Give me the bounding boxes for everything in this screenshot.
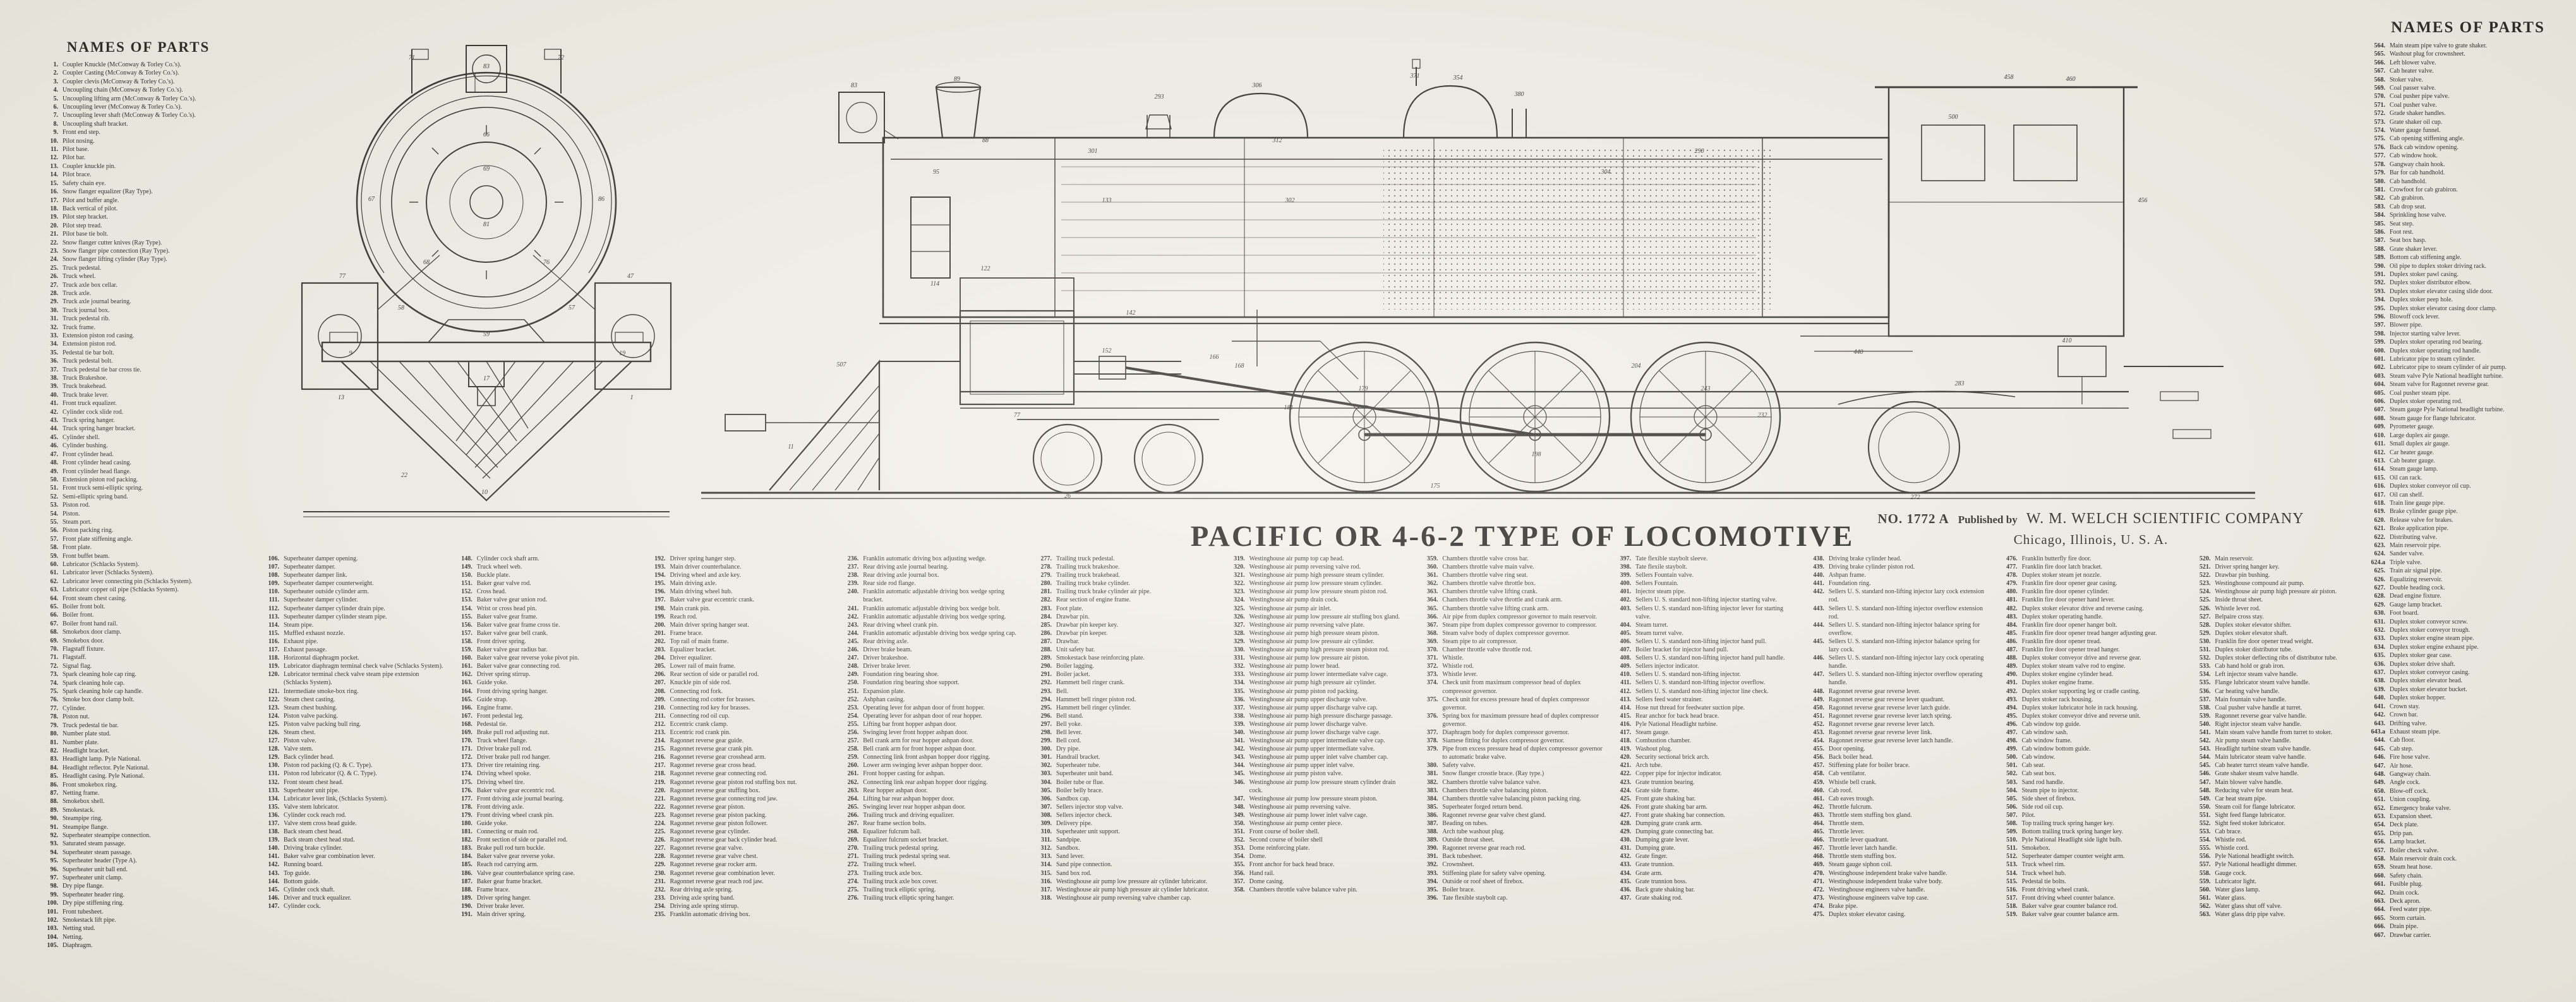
parts-item: 45.Cylinder shell. <box>37 433 240 442</box>
part-callout: 152 <box>1102 347 1112 354</box>
parts-item: 10.Pilot nosing. <box>37 137 240 145</box>
parts-item: 613.Cab heater gauge. <box>2364 457 2572 465</box>
parts-item: 162.Driver spring stirrup. <box>451 670 637 679</box>
parts-item: 534.Left injector steam valve handle. <box>2189 670 2375 679</box>
parts-item: 533.Cab hand hold or grab iron. <box>2189 662 2375 670</box>
parts-item: 521.Driver spring hanger key. <box>2189 563 2375 571</box>
parts-item: 390.Ragonnet reverse gear reach rod. <box>1416 844 1603 852</box>
parts-item: 373.Whistle lever. <box>1416 670 1603 679</box>
parts-item: 384.Chambers throttle valve balancing pi… <box>1416 795 1603 803</box>
parts-item: 517.Front driving wheel counter balance. <box>1996 894 2182 902</box>
parts-item: 582.Cab grabiron. <box>2364 194 2572 202</box>
parts-item: 40.Truck brake lever. <box>37 391 240 399</box>
parts-item: 458.Cab ventilator. <box>1803 770 1989 778</box>
parts-item: 28.Truck axle. <box>37 289 240 298</box>
parts-item: 212.Eccentric crank clamp. <box>644 720 830 728</box>
parts-item: 77.Cylinder. <box>37 704 240 713</box>
parts-item: 588.Grate shaker lever. <box>2364 245 2572 253</box>
parts-item: 427.Front grate shaking bar connection. <box>1610 811 1796 819</box>
parts-item: 486.Franklin fire door opener tread. <box>1996 637 2182 646</box>
parts-item: 660.Safety chain. <box>2364 872 2572 880</box>
parts-item: 1.Coupler Knuckle (McConway & Torley Co.… <box>37 61 240 69</box>
parts-item: 618.Train line gauge pipe. <box>2364 499 2572 507</box>
parts-item: 213.Eccentric rod crank pin. <box>644 728 830 737</box>
part-callout: 83 <box>483 63 490 70</box>
parts-item: 420.Security sectional brick arch. <box>1610 753 1796 761</box>
parts-item: 16.Snow flanger equalizer (Ray Type). <box>37 188 240 196</box>
parts-item: 611.Small duplex air gauge. <box>2364 440 2572 448</box>
parts-item: 62.Lubricator lever connecting pin (Schl… <box>37 577 240 586</box>
parts-item: 662.Drain cock. <box>2364 889 2572 897</box>
parts-item: 580.Cab handhold. <box>2364 178 2572 186</box>
parts-item: 485.Franklin fire door opener tread hang… <box>1996 629 2182 637</box>
parts-item: 152.Cross head. <box>451 588 637 596</box>
parts-item: 468.Throttle stem stuffing box. <box>1803 852 1989 860</box>
parts-item: 156.Baker valve gear frame cross tie. <box>451 621 637 629</box>
parts-item: 237.Rear driving axle journal bearing. <box>837 563 1023 571</box>
parts-item: 649.Angle cock. <box>2364 778 2572 787</box>
parts-item: 146.Driver and truck equalizer. <box>258 894 444 902</box>
parts-item: 263.Rear hopper ashpan door. <box>837 787 1023 795</box>
parts-item: 590.Oil pipe to duplex stoker driving ra… <box>2364 262 2572 270</box>
parts-item: 303.Superheater unit band. <box>1030 770 1217 778</box>
parts-item: 364.Chambers throttle valve throttle and… <box>1416 596 1603 604</box>
parts-item: 214.Ragonnet reverse gear guide. <box>644 737 830 745</box>
parts-item: 529.Duplex stoker elevator shaft. <box>2189 629 2375 637</box>
parts-item: 535.Flange lubricator steam valve handle… <box>2189 679 2375 687</box>
parts-item: 412.Sellers U. S. standard non-lifting i… <box>1610 687 1796 696</box>
parts-item: 119.Lubricator diaphragm terminal check … <box>258 662 444 670</box>
parts-item: 339.Westinghouse air pump lower discharg… <box>1224 720 1410 728</box>
parts-item: 251.Expansion plate. <box>837 687 1023 696</box>
parts-column-11: 520.Main reservoir.521.Driver spring han… <box>2189 555 2375 919</box>
parts-item: 378.Siamese fitting for duplex compresso… <box>1416 737 1603 745</box>
part-callout: 175 <box>1431 483 1440 490</box>
parts-item: 566.Left blower valve. <box>2364 59 2572 67</box>
parts-item: 610.Large duplex air gauge. <box>2364 432 2572 440</box>
parts-item: 595.Duplex stoker elevator casing door c… <box>2364 305 2572 313</box>
parts-item: 305.Boiler belly brace. <box>1030 787 1217 795</box>
parts-item: 495.Duplex stoker conveyor drive and rev… <box>1996 712 2182 720</box>
parts-item: 232.Rear driving axle spring. <box>644 886 830 894</box>
parts-item: 186.Valve gear counterbalance spring cas… <box>451 869 637 878</box>
parts-item: 642.Crown bar. <box>2364 711 2572 719</box>
parts-item: 477.Franklin fire door latch bracket. <box>1996 563 2182 571</box>
parts-item: 165.Guide strap. <box>451 696 637 704</box>
parts-item: 211.Connecting rod oil cup. <box>644 712 830 720</box>
parts-item: 15.Safety chain eye. <box>37 179 240 188</box>
parts-item: 643.Drifting valve. <box>2364 720 2572 728</box>
parts-item: 259.Connecting link front ashpan hopper … <box>837 753 1023 761</box>
parts-item: 438.Driving brake cylinder head. <box>1803 555 1989 563</box>
parts-item: 406.Sellers U. S. standard non-lifting i… <box>1610 637 1796 646</box>
parts-item: 436.Back grate shaking bar. <box>1610 886 1796 894</box>
parts-item: 470.Westinghouse independent brake valve… <box>1803 869 1989 878</box>
parts-item: 424.Grate side frame. <box>1610 787 1796 795</box>
parts-item: 572.Grade shaker handles. <box>2364 109 2572 118</box>
parts-item: 315.Sand box rod. <box>1030 869 1217 878</box>
parts-item: 163.Guide yoke. <box>451 679 637 687</box>
parts-item: 358.Chambers throttle valve balance valv… <box>1224 886 1410 894</box>
parts-item: 350.Westinghouse air pump center piece. <box>1224 819 1410 828</box>
part-callout: 133 <box>1102 197 1112 204</box>
parts-item: 272.Trailing truck wheel. <box>837 860 1023 869</box>
parts-item: 409.Sellers injector indicator. <box>1610 662 1796 670</box>
parts-item: 254.Operating lever for ashpan door of r… <box>837 712 1023 720</box>
parts-item: 421.Arch tube. <box>1610 761 1796 770</box>
parts-item: 167.Front pedestal leg. <box>451 712 637 720</box>
parts-item: 456.Back boiler head. <box>1803 753 1989 761</box>
parts-item: 347.Westinghouse air pump low pressure s… <box>1224 795 1410 803</box>
parts-item: 92.Superheater steampipe connection. <box>37 831 240 840</box>
parts-item: 139.Back steam chest head stud. <box>258 836 444 844</box>
parts-item: 14.Pilot brace. <box>37 171 240 179</box>
left-parts-panel: NAMES OF PARTS 1.Coupler Knuckle (McConw… <box>37 39 240 950</box>
parts-item: 218.Ragonnet reverse gear connecting rod… <box>644 770 830 778</box>
left-parts-list: 1.Coupler Knuckle (McConway & Torley Co.… <box>37 61 240 950</box>
parts-item: 102.Smokestack lift pipe. <box>37 916 240 924</box>
parts-item: 330.Westinghouse air pump high pressure … <box>1224 646 1410 654</box>
parts-item: 346.Westinghouse air pump low pressure s… <box>1224 778 1410 795</box>
parts-item: 643.aExhaust steam pipe. <box>2364 728 2572 736</box>
parts-item: 74.Spark cleaning hole cap. <box>37 679 240 687</box>
parts-item: 307.Sellers injector stop valve. <box>1030 803 1217 811</box>
parts-item: 94.Superheater steam passage. <box>37 848 240 857</box>
parts-item: 100.Dry pipe stiffening ring. <box>37 899 240 907</box>
parts-column-6: 319.Westinghouse air pump top cap head.3… <box>1224 555 1410 919</box>
parts-item: 178.Front driving axle. <box>451 803 637 811</box>
parts-item: 60.Lubricator (Schlacks System). <box>37 560 240 569</box>
parts-item: 89.Smokestack. <box>37 806 240 814</box>
parts-item: 337.Westinghouse air pump upper discharg… <box>1224 704 1410 712</box>
parts-item: 238.Rear driving axle journal box. <box>837 571 1023 579</box>
parts-item: 636.Duplex stoker drive shaft. <box>2364 660 2572 668</box>
parts-item: 497.Cab window sash. <box>1996 728 2182 737</box>
parts-item: 602.Lubricator pipe to steam cylinder of… <box>2364 363 2572 371</box>
parts-item: 138.Back steam chest head. <box>258 828 444 836</box>
parts-item: 587.Seat box hasp. <box>2364 236 2572 244</box>
part-callout: 83 <box>851 82 857 89</box>
parts-item: 299.Bell cord. <box>1030 737 1217 745</box>
parts-item: 564.Main steam pipe valve to grate shake… <box>2364 42 2572 50</box>
parts-item: 604.Steam valve for Ragonnet reverse gea… <box>2364 380 2572 389</box>
parts-item: 33.Extension piston rod casing. <box>37 332 240 340</box>
parts-item: 528.Duplex stoker elevator shifter. <box>2189 621 2375 629</box>
parts-item: 440.Ashpan frame. <box>1803 571 1989 579</box>
parts-item: 127.Piston valve. <box>258 737 444 745</box>
parts-item: 274.Trailing truck axle box cover. <box>837 878 1023 886</box>
part-callout: 58 <box>398 305 404 311</box>
parts-item: 531.Duplex stoker distributor tube. <box>2189 646 2375 654</box>
parts-item: 123.Steam chest bushing. <box>258 704 444 712</box>
parts-item: 247.Driver brakeshoe. <box>837 654 1023 662</box>
parts-item: 624.Sander valve. <box>2364 550 2572 558</box>
parts-item: 240.Franklin automatic adjustable drivin… <box>837 588 1023 604</box>
parts-item: 632.Duplex stoker conveyor trough. <box>2364 626 2572 634</box>
part-callout: 283 <box>1955 380 1965 387</box>
parts-item: 128.Valve stem. <box>258 745 444 753</box>
part-callout: 71 <box>409 54 415 61</box>
parts-item: 556.Pyle National headlight switch. <box>2189 852 2375 860</box>
parts-item: 466.Throttle lever quadrant. <box>1803 836 1989 844</box>
parts-item: 518.Baker valve gear counter balance rod… <box>1996 902 2182 910</box>
parts-item: 73.Spark cleaning hole cap ring. <box>37 670 240 679</box>
parts-item: 651.Union coupling. <box>2364 795 2572 804</box>
part-callout: 66 <box>483 131 490 138</box>
parts-item: 206.Rear section of side or parallel rod… <box>644 670 830 679</box>
part-callout: 10 <box>481 489 488 496</box>
parts-item: 104.Netting. <box>37 933 240 941</box>
parts-item: 327.Westinghouse air pump reversing valv… <box>1224 621 1410 629</box>
parts-item: 478.Duplex stoker steam jet nozzle. <box>1996 571 2182 579</box>
parts-column-5: 277.Trailing truck pedestal.278.Trailing… <box>1030 555 1217 919</box>
parts-item: 36.Truck pedestal bolt. <box>37 357 240 365</box>
parts-item: 224.Ragonnet reverse gear piston followe… <box>644 819 830 828</box>
parts-item: 450.Ragonnet reverse gear reverse lever … <box>1803 704 1989 712</box>
published-by-label: Published by <box>1952 514 2024 526</box>
parts-item: 413.Sellers feed water strainer. <box>1610 696 1796 704</box>
parts-item: 532.Duplex stoker deflecting ribs of dis… <box>2189 654 2375 662</box>
parts-item: 343.Westinghouse air pump upper inlet va… <box>1224 753 1410 761</box>
parts-item: 542.Air pump steam valve handle. <box>2189 737 2375 745</box>
parts-item: 235.Franklin automatic driving box. <box>644 910 830 919</box>
parts-item: 189.Driver spring hanger. <box>451 894 637 902</box>
parts-item: 106.Superheater damper opening. <box>258 555 444 563</box>
parts-item: 499.Cab window bottom guide. <box>1996 745 2182 753</box>
parts-item: 599.Duplex stoker operating rod bearing. <box>2364 338 2572 346</box>
part-callout: 57 <box>569 305 575 311</box>
parts-item: 638.Duplex stoker elevator head. <box>2364 677 2572 685</box>
parts-item: 309.Delivery pipe. <box>1030 819 1217 828</box>
right-panel-title: NAMES OF PARTS <box>2364 19 2572 37</box>
parts-item: 360.Chambers throttle valve main valve. <box>1416 563 1603 571</box>
parts-item: 434.Grate arm. <box>1610 869 1796 878</box>
parts-item: 448.Ragonnet reverse gear reverse lever. <box>1803 687 1989 696</box>
parts-item: 265.Swinging lever rear hopper ashpan do… <box>837 803 1023 811</box>
parts-item: 113.Superheater damper cylinder steam pi… <box>258 613 444 621</box>
parts-item: 372.Whistle rod. <box>1416 662 1603 670</box>
parts-item: 575.Cab opening stiffening angle. <box>2364 135 2572 143</box>
parts-item: 164.Front driving spring hanger. <box>451 687 637 696</box>
parts-item: 640.Duplex stoker hopper. <box>2364 694 2572 702</box>
parts-item: 227.Ragonnet reverse gear valve. <box>644 844 830 852</box>
parts-item: 144.Bottom guide. <box>258 878 444 886</box>
parts-item: 21.Pilot base tie bolt. <box>37 230 240 238</box>
parts-item: 249.Foundation ring bearing shoe. <box>837 670 1023 679</box>
parts-item: 554.Whistle rod. <box>2189 836 2375 844</box>
parts-item: 377.Diaphragm body for duplex compressor… <box>1416 728 1603 737</box>
parts-item: 194.Driving wheel and axle key. <box>644 571 830 579</box>
parts-item: 507.Pilot. <box>1996 811 2182 819</box>
parts-item: 652.Emergency brake valve. <box>2364 804 2572 812</box>
parts-item: 394.Outside or roof sheet of firebox. <box>1416 878 1603 886</box>
parts-item: 61.Lubricator lever (Schlacks System). <box>37 569 240 577</box>
parts-item: 472.Westinghouse engineers valve handle. <box>1803 886 1989 894</box>
parts-item: 76.Smoke box door clamp bolt. <box>37 696 240 704</box>
parts-item: 400.Sellers Fountain. <box>1610 579 1796 588</box>
parts-item: 524.Westinghouse air pump high pressure … <box>2189 588 2375 596</box>
parts-item: 236.Franklin automatic driving box adjus… <box>837 555 1023 563</box>
parts-item: 98.Dry pipe flange. <box>37 882 240 890</box>
parts-item: 592.Duplex stoker distributor elbow. <box>2364 279 2572 287</box>
parts-item: 577.Cab window hook. <box>2364 152 2572 160</box>
parts-item: 511.Smokebox. <box>1996 844 2182 852</box>
parts-item: 243.Rear driving wheel crank pin. <box>837 621 1023 629</box>
parts-item: 527.Belpaire cross stay. <box>2189 613 2375 621</box>
parts-item: 37.Truck pedestal tie bar cross tie. <box>37 366 240 374</box>
parts-item: 204.Driver equalizer. <box>644 654 830 662</box>
part-callout: 26 <box>1064 493 1071 500</box>
parts-item: 352.Second course of boiler shell <box>1224 836 1410 844</box>
parts-item: 57.Front plate stiffening angle. <box>37 535 240 543</box>
parts-item: 192.Driver spring hanger step. <box>644 555 830 563</box>
part-callout: 13 <box>338 394 344 401</box>
parts-item: 616.Duplex stoker conveyor oil cup. <box>2364 482 2572 490</box>
parts-item: 110.Superheater outside cylinder arm. <box>258 588 444 596</box>
parts-item: 356.Hand rail. <box>1224 869 1410 878</box>
parts-item: 126.Steam chest. <box>258 728 444 737</box>
parts-item: 95.Superheater header (Type A). <box>37 857 240 865</box>
parts-item: 492.Duplex stoker supporting leg or crad… <box>1996 687 2182 696</box>
parts-item: 515.Pedestal tie bolts. <box>1996 878 2182 886</box>
parts-item: 131.Piston rod lubricator (Q. & C. Type)… <box>258 770 444 778</box>
part-callout: 9 <box>349 350 352 357</box>
parts-item: 647.Air hose. <box>2364 762 2572 770</box>
side-view-drawing: 8983882933063123713543802903011421227715… <box>689 13 2268 518</box>
parts-item: 546.Grate shaker steam valve handle. <box>2189 770 2375 778</box>
parts-item: 363.Chambers throttle valve lifting cran… <box>1416 588 1603 596</box>
parts-item: 294.Hammett bell ringer piston rod. <box>1030 696 1217 704</box>
parts-item: 398.Tate flexile staybolt. <box>1610 563 1796 571</box>
parts-item: 193.Main driver counterbalance. <box>644 563 830 571</box>
parts-item: 181.Connecting or main rod. <box>451 828 637 836</box>
parts-item: 657.Boiler check valve. <box>2364 847 2572 855</box>
parts-item: 84.Headlight reflector. Pyle National. <box>37 764 240 772</box>
parts-item: 96.Superheater unit ball end. <box>37 866 240 874</box>
parts-item: 553.Cab brace. <box>2189 828 2375 836</box>
parts-item: 429.Dumping grate connecting bar. <box>1610 828 1796 836</box>
parts-item: 42.Cylinder cock slide rod. <box>37 408 240 416</box>
part-callout: 204 <box>1632 363 1641 370</box>
parts-item: 393.Stiffening plate for safety valve op… <box>1416 869 1603 878</box>
front-view-drawing: 1022919597747837172666981687667861311758… <box>297 13 676 524</box>
parts-item: 417.Steam gauge. <box>1610 728 1796 737</box>
parts-item: 461.Cab eaves trough. <box>1803 795 1989 803</box>
parts-item: 469.Steam gauge siphon coil. <box>1803 860 1989 869</box>
parts-item: 338.Westinghouse air pump high pressure … <box>1224 712 1410 720</box>
parts-item: 405.Steam turret valve. <box>1610 629 1796 637</box>
parts-item: 333.Westinghouse air pump lower intermed… <box>1224 670 1410 679</box>
parts-item: 268.Equalizer fulcrum ball. <box>837 828 1023 836</box>
parts-item: 540.Right injector steam valve handle. <box>2189 720 2375 728</box>
parts-item: 568.Stoker valve. <box>2364 76 2572 84</box>
parts-item: 557.Pyle National headlight dimmer. <box>2189 860 2375 869</box>
parts-item: 593.Duplex stoker elevator casing slide … <box>2364 287 2572 296</box>
parts-item: 639.Duplex stoker elevator bucket. <box>2364 685 2572 694</box>
part-callout: 72 <box>558 54 564 61</box>
parts-item: 49.Front cylinder head flange. <box>37 468 240 476</box>
parts-item: 34.Extension piston rod. <box>37 340 240 348</box>
parts-item: 382.Chambers throttle valve balance valv… <box>1416 778 1603 787</box>
parts-item: 574.Water gauge funnel. <box>2364 126 2572 135</box>
parts-item: 627.Double heading cock. <box>2364 584 2572 592</box>
parts-item: 133.Superheater unit pipe. <box>258 787 444 795</box>
parts-item: 612.Car heater gauge. <box>2364 449 2572 457</box>
parts-item: 481.Franklin fire door opener hand lever… <box>1996 596 2182 604</box>
parts-item: 78.Piston nut. <box>37 713 240 721</box>
parts-item: 443.Sellers U. S. standard non-lifting i… <box>1803 605 1989 621</box>
part-callout: 293 <box>1155 94 1164 100</box>
parts-item: 293.Bell. <box>1030 687 1217 696</box>
parts-item: 281.Trailing truck brake cylinder air pi… <box>1030 588 1217 596</box>
parts-item: 90.Steampipe ring. <box>37 814 240 823</box>
parts-item: 317.Westinghouse air pump high pressure … <box>1030 886 1217 894</box>
parts-item: 199.Reach rod. <box>644 613 830 621</box>
parts-item: 191.Main driver spring. <box>451 910 637 919</box>
parts-item: 506.Side rod oil cup. <box>1996 803 2182 811</box>
parts-item: 628.Dead engine fixture. <box>2364 592 2572 600</box>
parts-item: 386.Ragonnet reverse gear valve chest gl… <box>1416 811 1603 819</box>
parts-item: 630.Foot board. <box>2364 609 2572 617</box>
parts-item: 54.Piston. <box>37 510 240 518</box>
parts-item: 541.Main steam valve handle from turret … <box>2189 728 2375 737</box>
parts-item: 665.Storm curtain. <box>2364 914 2572 922</box>
parts-item: 120.Lubricator terminal check valve stea… <box>258 670 444 687</box>
parts-item: 467.Throttle lever latch handle. <box>1803 844 1989 852</box>
parts-item: 341.Westinghouse air pump upper intermed… <box>1224 737 1410 745</box>
parts-item: 264.Lifting bar rear ashpan hopper door. <box>837 795 1023 803</box>
part-callout: 500 <box>1949 114 1958 121</box>
parts-item: 221.Ragonnet reverse gear connecting rod… <box>644 795 830 803</box>
parts-item: 287.Drawbar. <box>1030 637 1217 646</box>
locomotive-parts-chart: NAMES OF PARTS 1.Coupler Knuckle (McConw… <box>0 0 2576 1002</box>
parts-item: 217.Ragonnet reverse gear cross head. <box>644 761 830 770</box>
parts-item: 312.Sandbox. <box>1030 844 1217 852</box>
parts-item: 105.Diaphragm. <box>37 941 240 950</box>
parts-item: 29.Truck axle journal bearing. <box>37 298 240 306</box>
parts-item: 658.Main reservoir drain cock. <box>2364 855 2572 863</box>
parts-item: 313.Sand lever. <box>1030 852 1217 860</box>
parts-item: 581.Crowfoot for cab grabiron. <box>2364 186 2572 194</box>
parts-item: 278.Trailing truck brakeshoe. <box>1030 563 1217 571</box>
parts-item: 289.Smokestack base reinforcing plate. <box>1030 654 1217 662</box>
parts-item: 366.Air pipe from duplex compressor gove… <box>1416 613 1603 621</box>
parts-item: 250.Foundation ring bearing shoe support… <box>837 679 1023 687</box>
bottom-parts-columns: 106.Superheater damper opening.107.Super… <box>258 555 2375 919</box>
parts-item: 397.Tate flexible staybolt sleeve. <box>1610 555 1796 563</box>
parts-item: 455.Door opening. <box>1803 745 1989 753</box>
parts-item: 392.Crownsheet. <box>1416 860 1603 869</box>
parts-item: 177.Front driving axle journal bearing. <box>451 795 637 803</box>
parts-item: 447.Sellers U. S. standard non-lifting i… <box>1803 670 1989 687</box>
parts-item: 141.Baker valve gear combination lever. <box>258 852 444 860</box>
parts-item: 114.Steam pipe. <box>258 621 444 629</box>
part-callout: 89 <box>954 76 960 83</box>
parts-item: 229.Ragonnet reverse gear rocker arm. <box>644 860 830 869</box>
part-callout: 290 <box>1695 148 1704 155</box>
parts-item: 130.Piston rod packing (Q. & C. Type). <box>258 761 444 770</box>
parts-item: 500.Cab window. <box>1996 753 2182 761</box>
part-callout: 122 <box>981 265 990 272</box>
parts-item: 359.Chambers throttle valve cross bar. <box>1416 555 1603 563</box>
parts-item: 430.Dumping grate lever. <box>1610 836 1796 844</box>
parts-item: 262.Connecting link rear ashpan hopper d… <box>837 778 1023 787</box>
part-callout: 86 <box>598 196 605 203</box>
parts-item: 609.Pyrometer gauge. <box>2364 423 2572 431</box>
parts-item: 115.Muffled exhaust nozzle. <box>258 629 444 637</box>
parts-item: 300.Dry pipe. <box>1030 745 1217 753</box>
part-callout: 354 <box>1453 75 1463 81</box>
